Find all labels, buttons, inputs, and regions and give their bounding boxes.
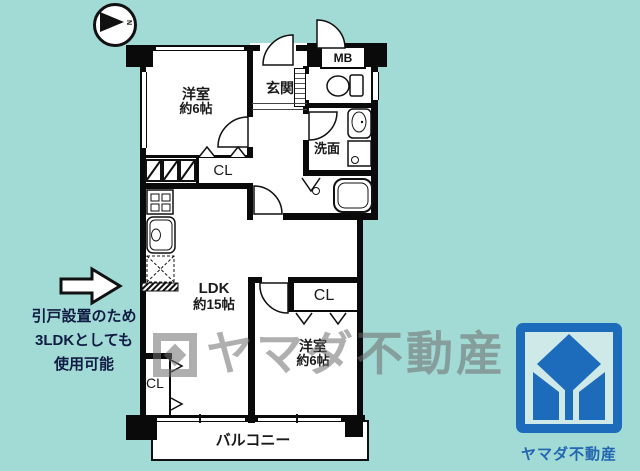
wall xyxy=(253,45,260,51)
wall xyxy=(345,415,363,437)
annotation-line: 引戸設置のため xyxy=(14,305,154,329)
ldk-name: LDK xyxy=(174,280,254,297)
wall xyxy=(247,45,253,117)
entrance-step-line xyxy=(252,109,307,110)
bedroom1-label: 洋室 約6帖 xyxy=(160,86,232,117)
wall xyxy=(146,183,253,189)
ldk-size: 約15帖 xyxy=(174,297,254,313)
meter-box-label: MB xyxy=(334,51,353,65)
arrow-icon xyxy=(58,266,124,306)
annotation-line: 使用可能 xyxy=(14,353,154,377)
window xyxy=(156,46,244,51)
window xyxy=(372,72,379,100)
company-logo-text: ヤマダ不動産 xyxy=(515,443,623,464)
company-logo: ヤマダ不動産 xyxy=(515,322,623,464)
wall xyxy=(371,43,378,220)
meter-box: MB xyxy=(320,46,366,69)
wall xyxy=(357,220,363,423)
window xyxy=(258,417,341,422)
wall xyxy=(309,103,372,108)
bedroom1-size: 約6帖 xyxy=(160,102,232,117)
ldk-label: LDK 約15帖 xyxy=(174,280,254,313)
wall xyxy=(288,277,363,283)
closet-ldk-label: CL xyxy=(141,375,169,391)
annotation-note: 引戸設置のため 3LDKとしても 使用可能 xyxy=(14,305,154,377)
wall xyxy=(283,213,378,220)
bedroom1-name: 洋室 xyxy=(160,86,232,102)
company-logo-icon xyxy=(515,322,623,434)
window xyxy=(141,72,147,148)
closet-door-line xyxy=(169,359,171,417)
bedroom2-label: 洋室 約6帖 xyxy=(277,338,349,369)
entrance-step-line xyxy=(252,103,307,104)
entrance-label: 玄関 xyxy=(255,80,305,96)
bedroom2-size: 約6帖 xyxy=(277,354,349,369)
closet-bedroom1-label: CL xyxy=(200,162,246,179)
compass-icon: N xyxy=(93,3,137,47)
wall xyxy=(294,310,357,312)
bedroom2-name: 洋室 xyxy=(277,338,349,354)
balcony-label: バルコニー xyxy=(188,432,318,449)
washroom-label: 洗面 xyxy=(308,142,346,157)
wall xyxy=(303,170,378,176)
annotation-line: 3LDKとしても xyxy=(14,329,154,353)
wall xyxy=(126,415,157,440)
window xyxy=(157,417,245,422)
compass-north-label: N xyxy=(125,20,132,25)
floorplan-page: MB xyxy=(0,0,640,471)
closet-bedroom2-label: CL xyxy=(294,287,354,305)
